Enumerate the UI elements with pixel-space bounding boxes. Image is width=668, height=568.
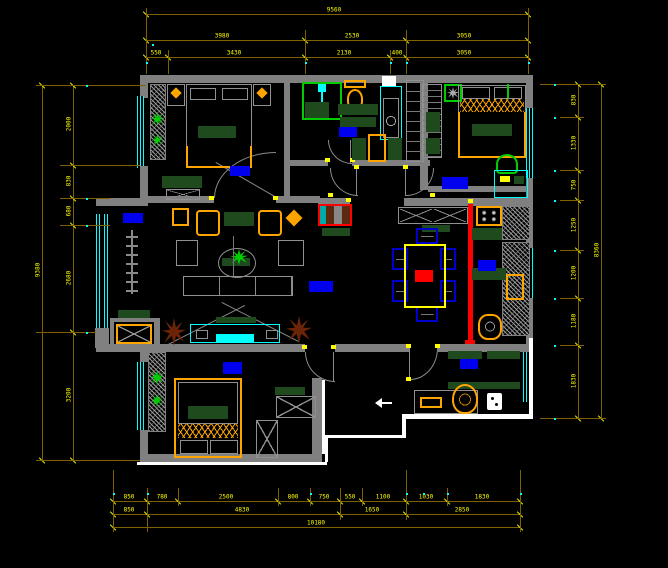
floor-plan-canvas: 9560398025303050550343021304003050850780…: [0, 0, 668, 568]
room-label: 阳台: [123, 213, 143, 223]
room-label: 厨房: [478, 260, 496, 271]
room-label: 卫生间: [339, 127, 357, 137]
room-label: 卧室: [223, 362, 242, 374]
room-label: 玄关: [460, 359, 478, 369]
room-label: 次卧: [442, 177, 468, 189]
room-label: 主卧: [230, 166, 250, 176]
room-label: 客厅: [309, 281, 333, 292]
room-label-layer: 主卧卫生间次卧阳台客厅厨房卧室玄关: [0, 0, 668, 568]
